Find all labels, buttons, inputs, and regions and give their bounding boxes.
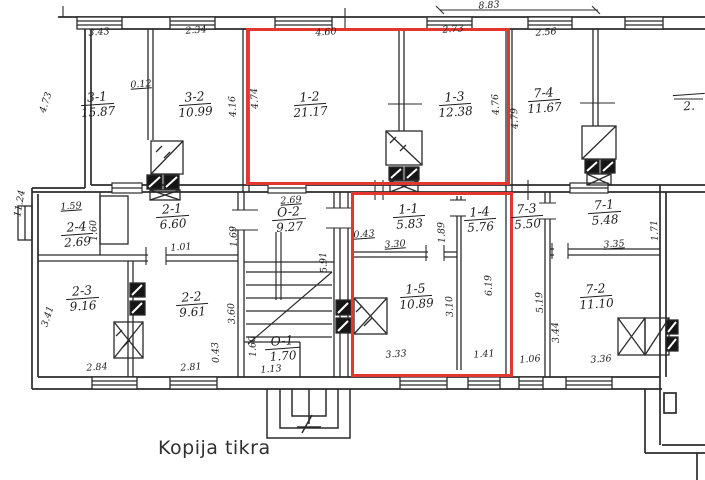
dim-1.69: 1.69	[228, 219, 241, 254]
dim-4.79: 4.79	[509, 101, 522, 136]
dim-1.60: 1.60	[247, 329, 260, 364]
dim-3.43: 3.43	[82, 26, 117, 39]
room-label-2-2: 2-29.61	[157, 286, 227, 321]
room-label-1-2: 1-221.17	[274, 86, 346, 122]
dim-5.19: 5.19	[534, 285, 547, 320]
room-number	[672, 92, 704, 96]
dim-6.19: 6.19	[483, 268, 496, 303]
dim-3.10: 3.10	[444, 289, 457, 324]
dim-3.33: 3.33	[379, 348, 414, 361]
dim-4.76: 4.76	[490, 87, 503, 122]
room-label-edge-partial: 2.	[671, 81, 705, 114]
room-label-2-1: 2-16.60	[139, 198, 206, 233]
caption-kopija-tikra: Kopija tikra	[158, 437, 271, 459]
floorplan-scan: 3-115.87 3-210.99 1-221.17 1-312.38 7-41…	[0, 0, 705, 480]
dim-1.71: 1.71	[649, 213, 662, 248]
dim-3.60: 3.60	[226, 296, 239, 331]
dim-1.41: 1.41	[467, 348, 502, 361]
room-label-7-1: 7-15.48	[571, 194, 638, 229]
dim-1.13: 1.13	[254, 363, 289, 376]
dim-3.44: 3.44	[550, 315, 563, 350]
dim-2.34: 2.34	[179, 24, 214, 37]
dim-0.12: 0.12	[124, 78, 159, 91]
room-label-O-1: O-11.70	[254, 330, 311, 364]
room-label-7-3: 7-35.50	[501, 198, 553, 232]
dim-4.16: 4.16	[227, 89, 240, 124]
room-area: 2.	[672, 99, 705, 114]
dim-4.60: 4.60	[309, 26, 344, 39]
dim-1.01: 1.01	[164, 241, 199, 254]
dim-5.91: 5.91	[318, 245, 331, 280]
dim-2.81: 2.81	[174, 361, 209, 374]
dim-0.43: 0.43	[210, 335, 223, 370]
dim-3.35: 3.35	[597, 238, 632, 251]
dim-2.69: 2.69	[274, 194, 309, 207]
dim-0.43: 0.43	[347, 228, 382, 241]
dim-4.74: 4.74	[249, 81, 262, 116]
dim-1.60: 1.60	[88, 213, 101, 248]
room-label-7-2: 7-211.10	[564, 278, 628, 313]
dim-1.89: 1.89	[436, 215, 449, 250]
dim-1.59: 1.59	[54, 200, 89, 213]
room-label-2-3: 2-39.16	[49, 280, 116, 315]
room-label-1-4: 1-45.76	[454, 201, 506, 235]
room-label-1-1: 1-15.83	[377, 198, 441, 233]
room-label-1-3: 1-312.38	[419, 86, 491, 122]
dim-1.06: 1.06	[513, 353, 548, 366]
dim-2.56: 2.56	[529, 26, 564, 39]
room-label-3-2: 3-210.99	[159, 86, 231, 122]
room-label-1-5: 1-510.89	[384, 278, 448, 313]
dim-2.73: 2.73	[436, 23, 471, 36]
dim-2.84: 2.84	[80, 361, 115, 374]
dim-3.36: 3.36	[584, 353, 619, 366]
entrance-porch	[267, 389, 350, 438]
dim-3.30: 3.30	[378, 238, 413, 251]
